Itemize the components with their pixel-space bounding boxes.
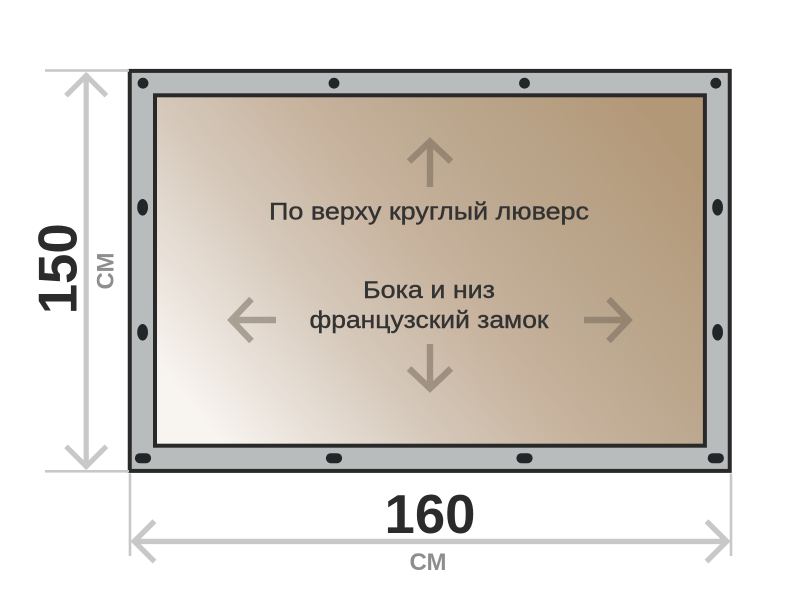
svg-text:Бока и низ: Бока и низ xyxy=(363,277,495,304)
svg-text:По верху круглый люверс: По верху круглый люверс xyxy=(269,199,589,226)
svg-text:150: 150 xyxy=(27,223,89,314)
svg-text:СМ: СМ xyxy=(93,252,120,289)
svg-text:160: 160 xyxy=(385,483,476,545)
svg-text:французский замок: французский замок xyxy=(310,307,550,334)
svg-text:СМ: СМ xyxy=(409,549,446,576)
